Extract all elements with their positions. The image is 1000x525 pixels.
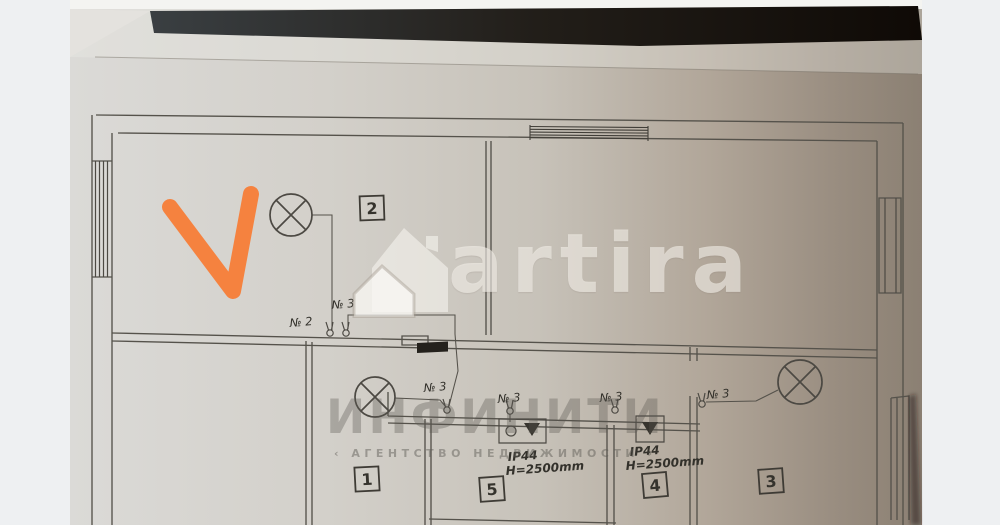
paper (70, 0, 922, 525)
switch-no3-label: № 3 (330, 296, 355, 312)
svg-text:4: 4 (649, 476, 662, 496)
svg-text:3: 3 (765, 472, 777, 492)
svg-text:1: 1 (361, 470, 373, 490)
switch-no2-label: № 2 (288, 314, 313, 330)
door-lintel-icon (417, 342, 448, 354)
plan-drawing: 2 1 5 4 3 № 2 № 3 № 3 № 3 № 3 № 3 IP44 H… (0, 0, 1000, 525)
switch-no3-label: № 3 (598, 389, 623, 405)
switch-no3-label: № 3 (422, 379, 447, 395)
floor-plan-photo: 2 1 5 4 3 № 2 № 3 № 3 № 3 № 3 № 3 IP44 H… (0, 0, 1000, 525)
svg-text:5: 5 (486, 480, 498, 500)
switch-no3-label: № 3 (705, 386, 730, 402)
svg-text:2: 2 (366, 199, 378, 218)
switch-no3-label: № 3 (496, 390, 521, 406)
